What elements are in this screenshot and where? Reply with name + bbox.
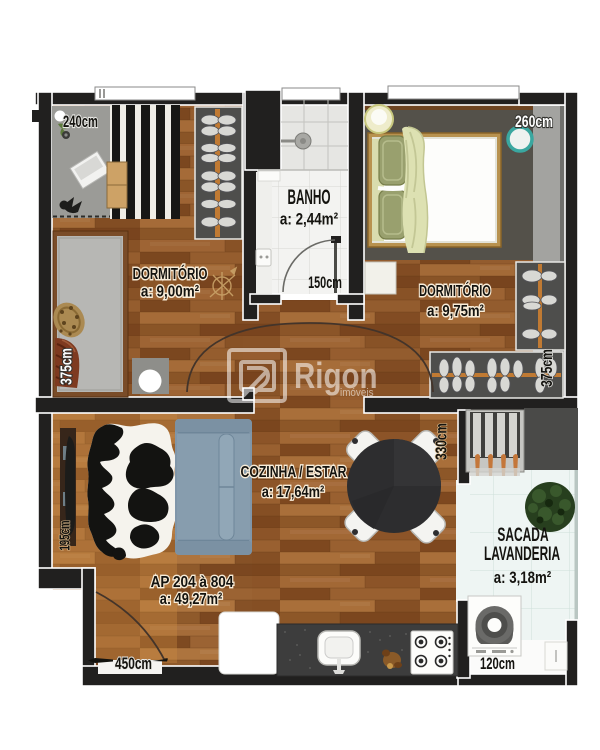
svg-text:120cm: 120cm [480, 654, 515, 673]
svg-text:a: 3,18m²: a: 3,18m² [494, 569, 551, 588]
svg-text:240cm: 240cm [63, 113, 98, 132]
svg-text:imóveis: imóveis [340, 388, 374, 400]
svg-text:a: 9,00m²: a: 9,00m² [141, 284, 199, 301]
svg-text:DORMITÓRIO: DORMITÓRIO [419, 280, 491, 300]
svg-text:330cm: 330cm [432, 423, 450, 460]
svg-text:375cm: 375cm [538, 349, 556, 387]
svg-text:450cm: 450cm [115, 655, 152, 673]
svg-text:260cm: 260cm [515, 113, 553, 131]
svg-text:a: 49,27m²: a: 49,27m² [160, 591, 223, 609]
svg-text:BANHO: BANHO [287, 185, 330, 208]
svg-text:a: 9,75m²: a: 9,75m² [427, 303, 484, 320]
svg-text:LAVANDERIA: LAVANDERIA [484, 544, 560, 564]
svg-text:COZINHA / ESTAR: COZINHA / ESTAR [240, 464, 346, 482]
svg-text:SACADA: SACADA [497, 525, 549, 545]
svg-text:375cm: 375cm [57, 348, 75, 385]
svg-text:AP 204 à 804: AP 204 à 804 [151, 574, 235, 591]
svg-text:a: 17,64m²: a: 17,64m² [262, 484, 325, 502]
svg-text:DORMITÓRIO: DORMITÓRIO [133, 263, 208, 283]
svg-text:195cm: 195cm [56, 520, 73, 550]
svg-text:150cm: 150cm [308, 274, 342, 293]
svg-text:a: 2,44m²: a: 2,44m² [280, 210, 338, 229]
